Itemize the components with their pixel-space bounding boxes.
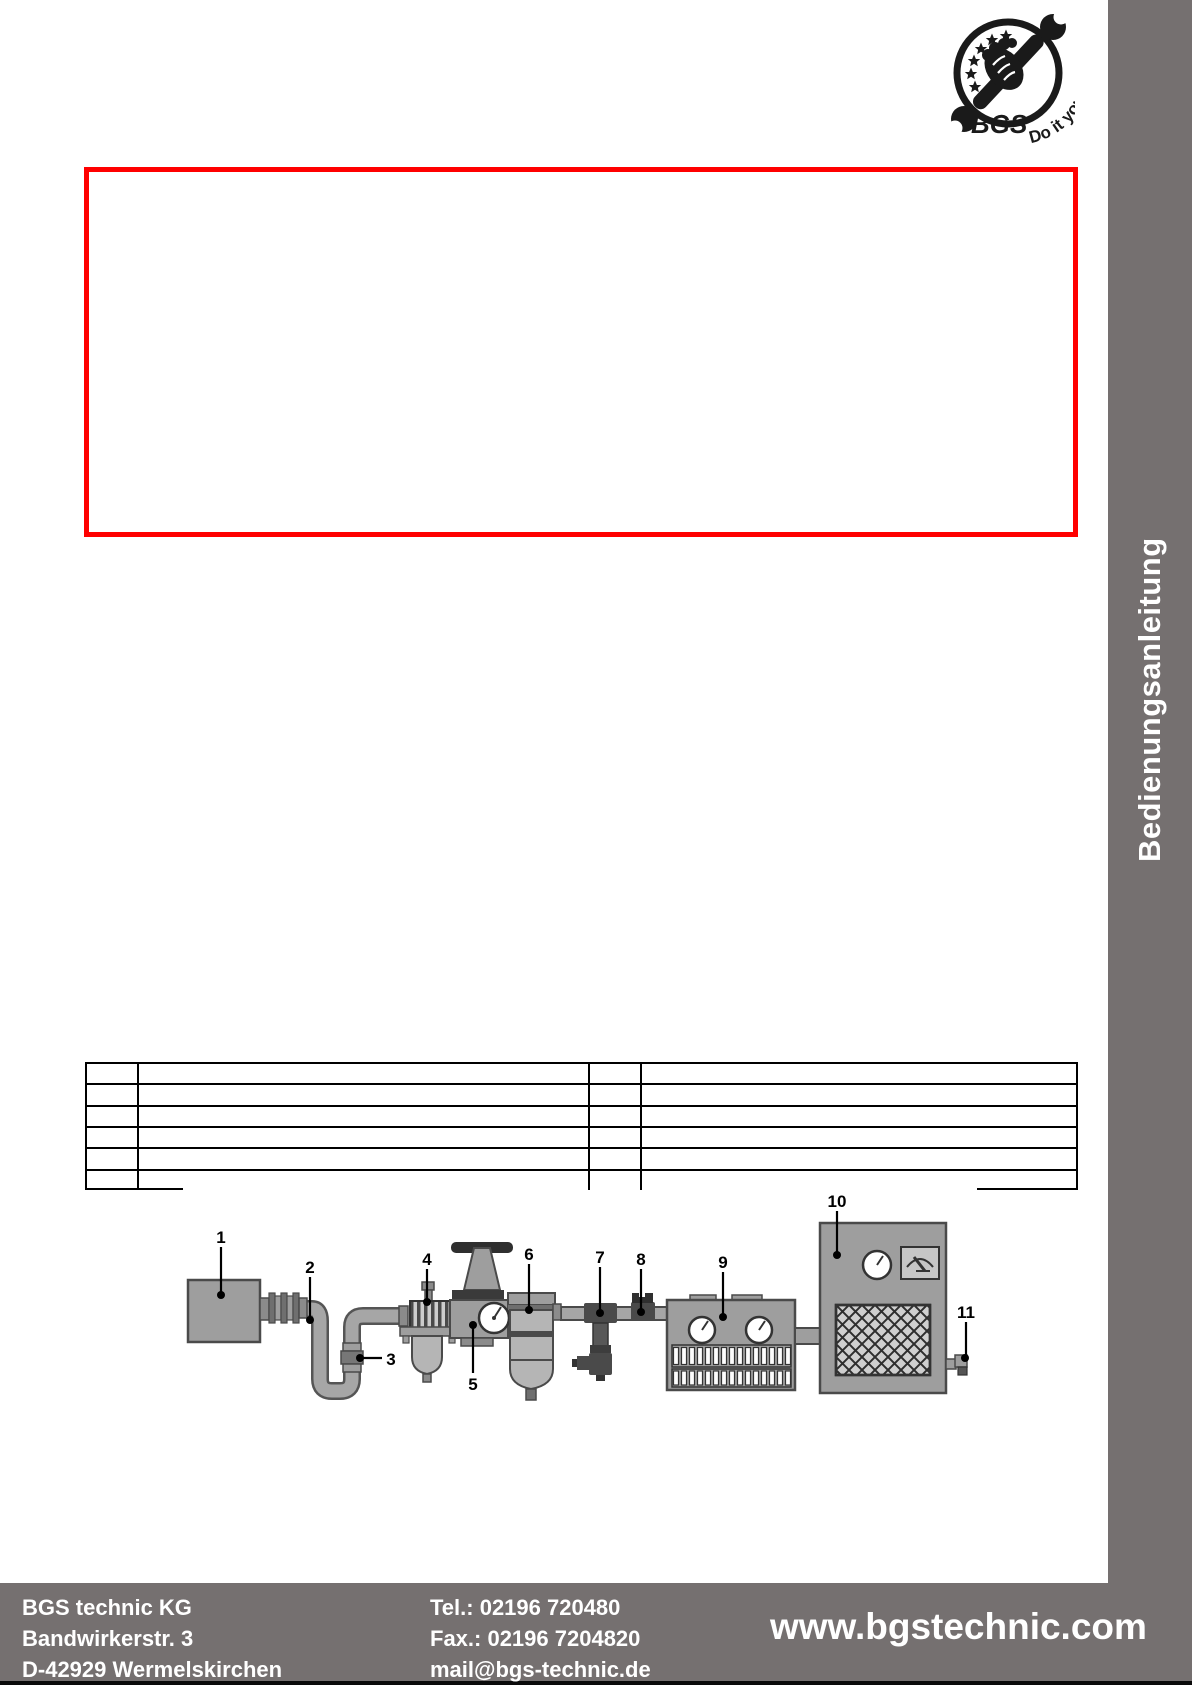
- footer-street: Bandwirkerstr. 3: [22, 1623, 282, 1654]
- table-cell: [590, 1085, 642, 1104]
- inlet-flange: [399, 1306, 408, 1326]
- table-cell: [87, 1149, 139, 1168]
- table-cell: [139, 1107, 590, 1126]
- pressure-regulator: [450, 1242, 513, 1346]
- table-cell: [642, 1085, 1076, 1104]
- table-cell: [87, 1064, 139, 1083]
- table-cell: [642, 1128, 1076, 1147]
- part-label-5: 5: [468, 1375, 477, 1394]
- table-cell: [642, 1149, 1076, 1168]
- table-cell: [87, 1085, 139, 1104]
- air-system-diagram: 1 2 3 4 5 6 7 8 9 10 11: [160, 1185, 990, 1415]
- part-label-3: 3: [386, 1350, 395, 1369]
- table-bottom-segment: [977, 1188, 1078, 1190]
- red-notice-frame: [84, 167, 1078, 537]
- table-row: [87, 1085, 1076, 1106]
- part-label-6: 6: [524, 1245, 533, 1264]
- part-label-1: 1: [216, 1228, 225, 1247]
- table-row: [87, 1107, 1076, 1128]
- table-cell: [87, 1107, 139, 1126]
- table-cell: [642, 1064, 1076, 1083]
- table-cell: [139, 1085, 590, 1104]
- table-cell: [590, 1149, 642, 1168]
- table-row: [87, 1128, 1076, 1149]
- table-cell: [642, 1107, 1076, 1126]
- dryer-cabinet: [820, 1223, 946, 1393]
- logo-brand-text: BGS: [971, 109, 1028, 139]
- part-label-4: 4: [422, 1250, 432, 1269]
- footer-phone: Tel.: 02196 720480: [430, 1592, 651, 1623]
- table-cell: [139, 1128, 590, 1147]
- parts-table: [85, 1062, 1078, 1190]
- table-cell: [590, 1064, 642, 1083]
- footer-company: BGS technic KG: [22, 1592, 282, 1623]
- part-label-10: 10: [828, 1192, 847, 1211]
- part-label-11: 11: [957, 1303, 975, 1322]
- part-label-9: 9: [718, 1253, 727, 1272]
- footer-address-block: BGS technic KG Bandwirkerstr. 3 D-42929 …: [22, 1592, 282, 1685]
- manual-page: Bedienungsanleitung: [0, 0, 1192, 1685]
- table-cell: [590, 1107, 642, 1126]
- table-cell: [139, 1149, 590, 1168]
- cabinet-grille: [836, 1305, 930, 1375]
- footer-city: D-42929 Wermelskirchen: [22, 1654, 282, 1685]
- footer-email: mail@bgs-technic.de: [430, 1654, 651, 1685]
- gauge-manifold: [667, 1295, 795, 1390]
- sidebar-vertical-title: Bedienungsanleitung: [1108, 500, 1192, 900]
- part-label-8: 8: [636, 1250, 645, 1269]
- part-label-2: 2: [305, 1258, 314, 1277]
- bgs-logo: BGS Do it yourself: [943, 10, 1075, 144]
- vent-slots: [672, 1369, 791, 1387]
- table-cell: [139, 1064, 590, 1083]
- table-cell: [87, 1128, 139, 1147]
- compressor-block: [188, 1280, 307, 1342]
- lubricator-unit: [508, 1293, 561, 1400]
- table-row: [87, 1149, 1076, 1170]
- table-row: [87, 1064, 1076, 1085]
- vent-slots: [672, 1345, 791, 1367]
- footer-website: www.bgstechnic.com: [770, 1606, 1180, 1648]
- footer-fax: Fax.: 02196 7204820: [430, 1623, 651, 1654]
- part-label-7: 7: [595, 1248, 604, 1267]
- table-cell: [590, 1128, 642, 1147]
- connecting-duct: [795, 1328, 820, 1344]
- footer-contact-block: Tel.: 02196 720480 Fax.: 02196 7204820 m…: [430, 1592, 651, 1685]
- shutoff-valve: [631, 1293, 655, 1321]
